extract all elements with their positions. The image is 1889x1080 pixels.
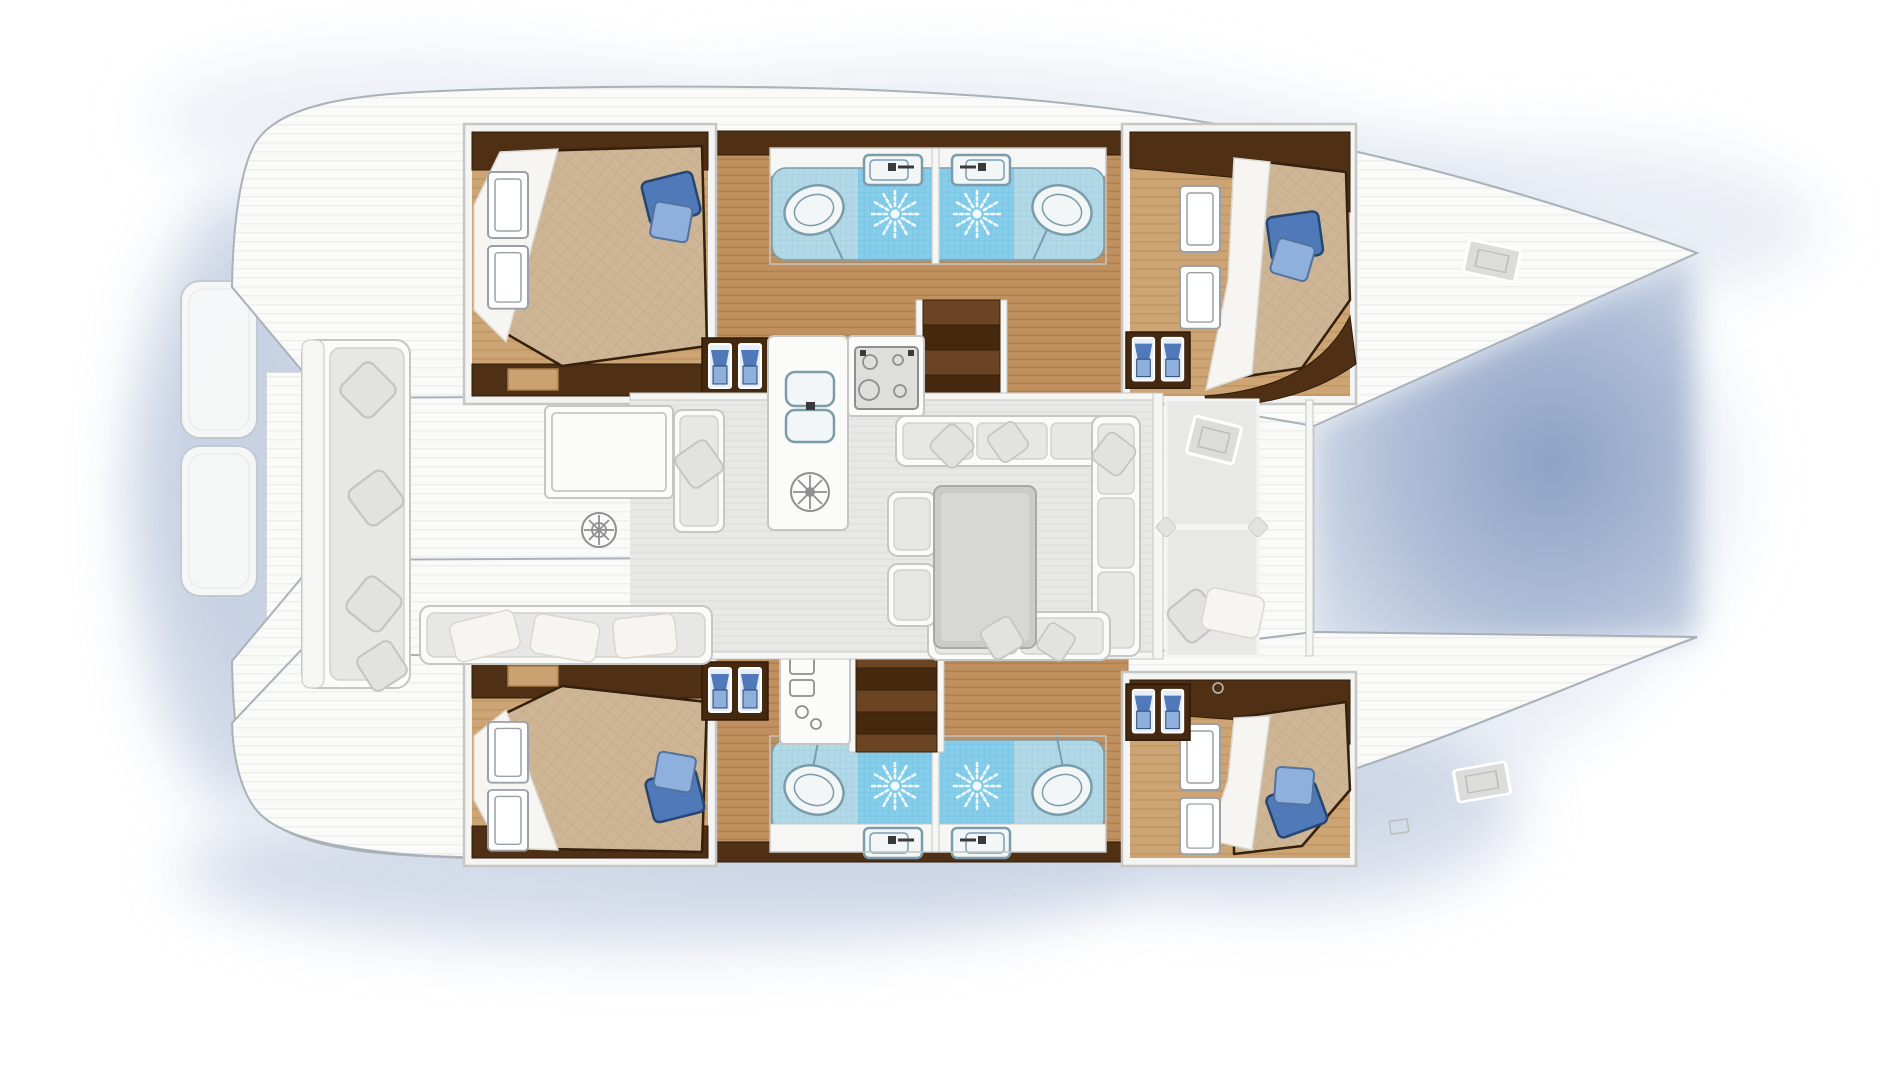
wardrobe-lockers [702, 662, 768, 720]
floor-plan-image [0, 0, 1889, 1080]
starboard-forward-cabin [1122, 672, 1356, 866]
cabin-door [1180, 186, 1220, 252]
cockpit-forward-bench [420, 606, 712, 664]
galley-sink [786, 372, 834, 406]
cockpit-table [582, 513, 616, 547]
hull-step-slot [508, 369, 558, 390]
starboard-companionway-stairs [849, 646, 944, 752]
washbasin [864, 155, 922, 185]
stern-platform-bottom [181, 446, 257, 596]
cabin-window [488, 722, 528, 783]
starboard-aft-cabin [464, 654, 716, 866]
bathroom-divider-wall [932, 736, 939, 852]
cooktop [855, 347, 918, 409]
cockpit-seat-module [545, 406, 673, 498]
catamaran-floor-plan [0, 0, 1889, 1080]
galley-sink [786, 410, 834, 442]
cabin-window [488, 246, 528, 309]
round-plate [791, 473, 829, 511]
port-aft-cabin [464, 124, 716, 404]
port-bathrooms [770, 148, 1106, 273]
washbasin [952, 828, 1010, 858]
wardrobe-lockers [702, 338, 768, 396]
cabin-door [1180, 798, 1220, 854]
port-forward-cabin [1122, 124, 1356, 408]
cabin-window [488, 172, 528, 238]
cabin-window [488, 790, 528, 851]
starboard-hull-interior [464, 644, 1356, 866]
wardrobe-lockers [1126, 684, 1190, 740]
forward-beam-edge [1306, 400, 1313, 656]
cockpit-aft-bench [302, 340, 415, 699]
bathroom-divider-wall [932, 148, 939, 264]
cabin-door [1180, 266, 1220, 329]
hull-step-slot [508, 666, 558, 686]
washbasin [864, 828, 922, 858]
washbasin [952, 155, 1010, 185]
wardrobe-lockers [1126, 332, 1190, 388]
bench-pillow [612, 613, 678, 659]
